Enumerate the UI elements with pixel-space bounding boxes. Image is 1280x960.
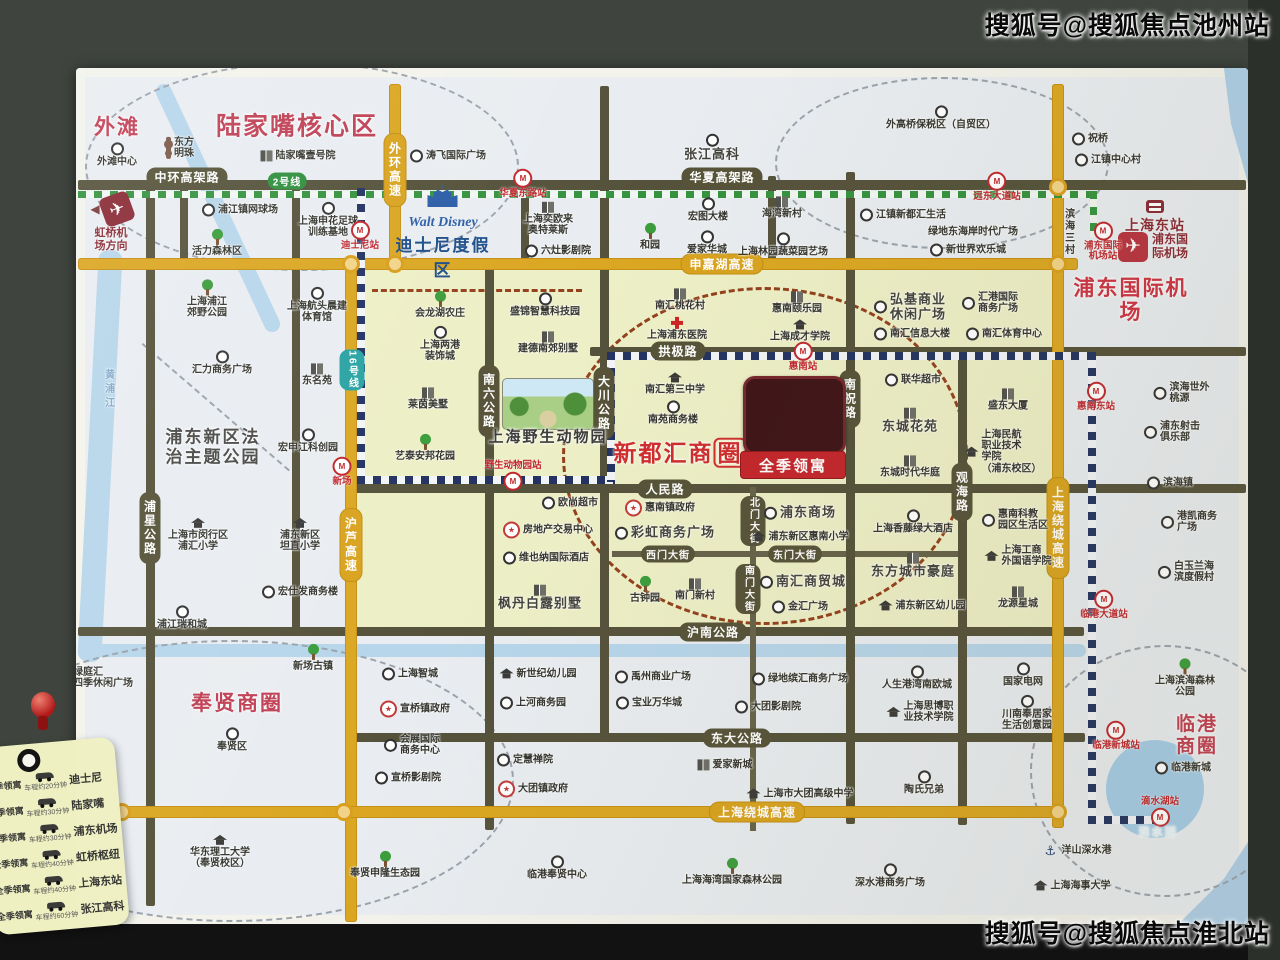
ring-icon: [525, 245, 538, 258]
metro-station-label: 远东大道站: [973, 192, 1021, 202]
poi-marker: 大团镇政府: [498, 781, 568, 798]
ring-icon: [1021, 695, 1034, 708]
ring-icon: [503, 552, 516, 565]
bldg-icon: [791, 291, 803, 302]
highway-junction-node: [1049, 255, 1067, 273]
poi-marker: 建德南郊别墅: [518, 331, 578, 354]
school-icon: [500, 669, 514, 680]
ring-icon: [551, 855, 564, 868]
bldg-icon: [674, 288, 686, 299]
poi-marker: 浦江瑞和城: [157, 605, 207, 630]
poi-label: 华东理工大学 （奉贤校区）: [190, 847, 250, 869]
district-label: 新都汇商圈: [614, 440, 747, 466]
poi-label: 浦东新区惠南小学: [769, 531, 849, 542]
metro-station: 迪士尼站: [341, 221, 379, 251]
ring-icon: [1017, 662, 1030, 675]
poi-marker: 宏图大楼: [688, 197, 728, 222]
poi-marker: 惠南颐乐园: [772, 291, 822, 314]
poi-label: 海湾新村: [762, 208, 802, 219]
road: [78, 180, 1246, 190]
poi-marker: 古钟园: [630, 576, 660, 604]
legend-destination-label: 陆家嘴: [71, 795, 105, 814]
project-marker-box: [743, 376, 846, 455]
metro-logo-icon: [793, 342, 812, 361]
airplane-icon: ✈: [97, 190, 135, 228]
poi-label: 深水港商务广场: [855, 877, 925, 888]
ring-icon: [885, 374, 898, 387]
poi-label: 上海智城: [398, 668, 438, 679]
poi-label: 爱家华城: [687, 244, 727, 255]
poi-marker: 宏申江科创园: [278, 428, 338, 453]
ring-icon: [375, 772, 388, 785]
ring-icon: [860, 209, 873, 222]
poi-label: 新场古镇: [293, 661, 333, 672]
poi-label: 上海海事大学: [1051, 880, 1111, 891]
poi-marker: 上河商务园: [500, 697, 566, 710]
poi-marker: 联华超市: [885, 374, 941, 387]
poi-marker: 东名苑: [302, 363, 332, 386]
sea-area-northeast: [1181, 68, 1248, 380]
school-icon: [293, 518, 307, 529]
car-icon: [38, 797, 57, 808]
disney-resort-label: 迪士尼度假区: [391, 231, 495, 281]
school-icon: [747, 789, 761, 800]
poi-marker: 彩虹商务广场: [615, 526, 715, 541]
legend-drive-time: 车程约60分钟: [35, 900, 78, 923]
metro-station-label: 惠南站: [789, 362, 818, 372]
poi-marker: 会龙湖农庄: [415, 291, 465, 319]
poi-label: 港凯商务广场: [1177, 511, 1219, 533]
poi-marker: 奉贤区: [217, 727, 247, 752]
legend-time-label: 车程约30分钟: [28, 831, 72, 845]
poi-label: 涛飞国际广场: [426, 150, 486, 161]
metro-line-2: [78, 191, 1094, 198]
bldg-icon: [542, 202, 554, 213]
poi-marker: 陆家嘴壹号院: [261, 150, 336, 161]
legend-origin-label: 全季领寓: [0, 907, 33, 923]
poi-marker: 港凯商务广场: [1161, 511, 1219, 533]
poi-marker: 新场古镇: [293, 644, 333, 672]
road: [78, 627, 1084, 636]
metro-station: 滴水湖站: [1141, 797, 1179, 827]
ring-icon: [918, 770, 931, 783]
poi-label: 宝业万华城: [632, 697, 682, 708]
ring-icon: [701, 230, 714, 243]
poi-marker: 东方 明珠: [166, 137, 194, 159]
highway-road: [78, 806, 1066, 818]
district-label: 陆家嘴核心区: [216, 113, 378, 142]
legend-origin-label: 全季领寓: [0, 829, 26, 845]
poi-marker: 浦东新区 坦直小学: [280, 518, 320, 552]
road: [292, 186, 300, 632]
district-dashed-ellipse: [76, 640, 514, 922]
ring-icon: [667, 400, 680, 413]
poi-label: 南苑商务楼: [648, 414, 698, 425]
poi-marker: 江镇中心村: [1075, 154, 1141, 167]
poi-marker: 黄浦江: [102, 369, 113, 411]
poi-label: 建德南郊别墅: [518, 343, 578, 354]
metro-station-label: 滴水湖站: [1141, 797, 1179, 807]
tree-icon: [307, 644, 320, 660]
poi-marker: 海湾新村: [762, 196, 802, 219]
ring-icon: [874, 301, 887, 314]
car-icon: [42, 849, 61, 860]
ring-icon: [615, 526, 628, 539]
poi-label: 维也纳国际酒店: [519, 552, 589, 563]
poi-label: 陶氏兄弟: [904, 784, 944, 795]
poi-marker: 东城时代华庭: [880, 455, 940, 478]
legend-time-label: 车程约40分钟: [31, 857, 75, 871]
poi-marker: 莱茵美墅: [408, 387, 448, 410]
poi-marker: 外滩中心: [97, 142, 137, 167]
poi-marker: 弘基商业 休闲广场: [874, 292, 946, 321]
poi-label: 东方城市豪庭: [871, 565, 955, 580]
metro-line-16: [1088, 352, 1096, 822]
poi-marker: 绿地东海岸时代广场: [928, 226, 1018, 237]
poi-label: 浦东新区 坦直小学: [280, 530, 320, 552]
poi-label: 外高桥保税区（自贸区）: [886, 119, 996, 130]
poi-label: 欧尚超市: [558, 497, 598, 508]
legend-drive-time: 车程约30分钟: [26, 796, 69, 819]
metro-station: 浦东国际 机场站: [1084, 222, 1122, 263]
poi-label: 上海滨海森林公园: [1154, 675, 1217, 697]
ring-icon: [539, 292, 552, 305]
poi-label: 大团镇政府: [518, 783, 568, 794]
poi-marker: 滨海三村: [1062, 208, 1073, 256]
ring-icon: [735, 701, 748, 714]
poi-label: 枫丹白露别墅: [498, 597, 582, 612]
poi-marker: 华东理工大学 （奉贤校区）: [190, 835, 250, 869]
poi-label: 洋山深水港: [1062, 845, 1112, 856]
poi-marker: 南汇商贸城: [760, 575, 846, 590]
star-icon: [380, 701, 397, 718]
poi-marker: 宏仕发商务楼: [262, 586, 338, 599]
poi-label: 滨海镇: [1163, 477, 1193, 488]
poi-marker: 浦东商场: [764, 506, 836, 521]
poi-marker: 上海滨海森林公园: [1154, 658, 1217, 697]
school-icon: [887, 707, 901, 718]
poi-marker: 汇港国际 商务广场: [962, 292, 1018, 314]
poi-marker: 奉贤申隆生态园: [350, 851, 420, 879]
poi-label: 盛锦智慧科技园: [510, 306, 580, 317]
poi-label: 滨海三村: [1062, 208, 1073, 256]
ring-icon: [226, 727, 239, 740]
legend-destination-label: 上海东站: [78, 871, 123, 891]
poi-marker: 上海两港 装饰城: [420, 326, 460, 362]
ring-icon: [616, 697, 629, 710]
tree-icon: [639, 576, 652, 592]
poi-marker: 爱家新城: [698, 759, 753, 770]
poi-label: 宣桥影剧院: [391, 772, 441, 783]
metro-logo-icon: [513, 169, 532, 188]
poi-label: 宏仕发商务楼: [278, 586, 338, 597]
poi-label: 会展国际 商务中心: [400, 734, 440, 756]
poi-label: 盛东大厦: [988, 400, 1028, 411]
ring-icon: [410, 150, 423, 163]
poi-marker: 人生港湾南欧城: [882, 665, 952, 690]
ring-icon: [907, 509, 920, 522]
bldg-icon: [422, 387, 434, 398]
poi-label: 南汇商贸城: [776, 575, 846, 590]
poi-marker: 上海林园蔬菜园艺场: [738, 232, 828, 257]
poi-marker: 六灶影剧院: [525, 245, 591, 258]
metro-station: 远东大道站: [973, 172, 1021, 202]
poi-marker: 浦东射击 俱乐部: [1144, 421, 1200, 443]
poi-label: 人生港湾南欧城: [882, 679, 952, 690]
district-label: 浦东新区法 治主题公园: [166, 427, 261, 466]
poi-label: 上海海湾国家森林公园: [682, 875, 782, 886]
poi-label: 爱家新城: [713, 759, 753, 770]
bldg-icon: [904, 455, 916, 466]
ring-icon: [1147, 477, 1160, 490]
highway-junction-node: [335, 803, 353, 821]
road-label: 沪芦高速: [341, 509, 362, 581]
poi-marker: 龙源星城: [998, 586, 1038, 609]
disney-logo-text: Walt Disney: [391, 215, 495, 231]
shanghai-east-station-block: 上海东站: [1124, 200, 1186, 235]
poi-label: 临港新城: [1171, 762, 1211, 773]
poi-label: 会龙湖农庄: [415, 308, 465, 319]
project-name-banner: 全季领寓: [740, 451, 846, 479]
poi-marker: 上海航头晨建 体育馆: [287, 287, 347, 323]
poi-marker: 枫丹白露别墅: [498, 585, 582, 612]
poi-label: 金汇广场: [788, 601, 828, 612]
poi-label: 上海林园蔬菜园艺场: [738, 246, 828, 257]
poi-label: 大团影剧院: [751, 701, 801, 712]
poi-marker: 上海市大团高级中学: [747, 788, 854, 799]
ring-icon: [1158, 566, 1171, 579]
road-label: 东大公路: [703, 729, 771, 748]
metro-station-label: 野生动物园站: [484, 461, 541, 471]
poi-marker: 上海思博职 业技术学院: [887, 701, 954, 723]
bldg-icon: [542, 331, 554, 342]
river-band: [77, 250, 123, 663]
legend-destination-label: 迪士尼: [68, 769, 102, 788]
wildlife-park-image: [502, 378, 594, 430]
bldg-icon: [1002, 388, 1014, 399]
poi-label: 活力森林区: [192, 246, 242, 257]
ring-icon: [874, 328, 887, 341]
poi-marker: 上海奕欧来 奥特莱斯: [523, 202, 573, 236]
road-label: 人民路: [637, 480, 692, 499]
ring-icon: [202, 204, 215, 217]
bldg-icon: [311, 363, 323, 374]
poi-marker: 外高桥保税区（自贸区）: [886, 105, 996, 130]
school-icon: [191, 518, 205, 529]
poi-label: 定慧禅院: [513, 754, 553, 765]
poi-label: 上海香藤绿大酒店: [873, 523, 953, 534]
poi-marker: 南苑商务楼: [648, 400, 698, 425]
metro-station: 临港新城站: [1092, 721, 1140, 751]
ring-icon: [760, 575, 773, 588]
ring-icon: [111, 142, 124, 155]
ring-icon: [311, 287, 324, 300]
school-icon: [1034, 881, 1048, 892]
star-icon: [625, 500, 642, 517]
poi-marker: 涛飞国际广场: [410, 150, 486, 163]
metro-logo-icon: [503, 472, 522, 491]
poi-marker: 陶氏兄弟: [904, 770, 944, 795]
legend-time-label: 车程约60分钟: [35, 909, 79, 923]
ring-icon: [982, 514, 995, 527]
poi-marker: 浦东新区惠南小学: [752, 531, 849, 542]
poi-label: 南汇信息大楼: [890, 328, 950, 339]
poi-marker: 江镇新都汇生活: [860, 209, 946, 222]
ring-icon: [302, 428, 315, 441]
road: [485, 262, 494, 830]
poi-label: 南门新村: [675, 590, 715, 601]
legend-origin-label: 全季领寓: [0, 881, 31, 897]
car-icon: [35, 771, 54, 782]
cross-icon: [671, 317, 683, 329]
road-label: 2号线: [268, 173, 307, 190]
poi-marker: 盛东大厦: [988, 388, 1028, 411]
disney-castle-icon: [422, 184, 464, 210]
poi-marker: 南汇第三中学: [645, 372, 705, 395]
road-label: 浦星公路: [140, 492, 161, 564]
disney-resort-block: Walt Disney 迪士尼度假区: [391, 184, 495, 281]
tree-icon: [211, 229, 224, 245]
legend-origin-label: 全季领寓: [0, 803, 24, 819]
poi-marker: 白玉兰海滨度假村: [1158, 561, 1218, 583]
poi-label: 南汇第三中学: [645, 384, 705, 395]
poi-label: 上海市闵行区 浦汇小学: [168, 530, 228, 552]
poi-label: 张江高科: [684, 148, 740, 163]
school-icon: [793, 319, 807, 330]
road-label: 沪南公路: [679, 623, 747, 642]
metro-station-label: 华夏东路站: [499, 189, 547, 199]
poi-marker: 上海工商 外国语学院: [985, 545, 1052, 567]
ring-icon: [966, 328, 979, 341]
poi-marker: 国家电网: [1003, 662, 1043, 687]
metro-station-label: 惠南东站: [1077, 402, 1115, 412]
poi-marker: 东方城市豪庭: [871, 553, 955, 580]
poi-label: 上海浦江 郊野公园: [187, 296, 227, 318]
metro-station-label: 迪士尼站: [341, 241, 379, 251]
poi-label: 六灶影剧院: [541, 245, 591, 256]
poi-marker: ⚓洋山深水港: [1045, 844, 1112, 858]
ring-icon: [1161, 516, 1174, 529]
poi-label: 南汇桃花村: [655, 300, 705, 311]
legend-time-label: 车程约40分钟: [33, 883, 77, 897]
poi-label: 艺泰安邦花园: [395, 451, 455, 462]
poi-label: 宣桥镇政府: [400, 703, 450, 714]
poi-label: 禹州商业广场: [631, 671, 691, 682]
car-icon: [45, 875, 64, 886]
poi-marker: 临港奉贤中心: [527, 855, 587, 880]
district-label: 上海野生动物园: [488, 428, 607, 445]
poi-marker: 上海海事大学: [1034, 880, 1111, 891]
bldg-icon: [907, 553, 919, 564]
poi-marker: 汇力商务广场: [192, 350, 252, 375]
road: [958, 347, 967, 825]
poi-label: 滨海世外桃源: [1170, 382, 1217, 404]
poi-marker: 上海市闵行区 浦汇小学: [168, 518, 228, 552]
poi-marker: 南汇桃花村: [655, 288, 705, 311]
highway-road: [78, 258, 1078, 270]
metro-logo-icon: [1106, 721, 1125, 740]
poi-label: 绿庭汇 四季休闲广场: [76, 667, 133, 689]
ring-icon: [1155, 762, 1168, 775]
road-label: 南门大街: [736, 564, 761, 614]
poi-label: 川南奉居家 生活创意园: [1002, 709, 1052, 731]
poi-marker: 惠南镇政府: [625, 500, 695, 517]
poi-label: 联华超市: [901, 374, 941, 385]
poi-label: 上海浦东医院: [647, 330, 707, 341]
poi-label: 国家电网: [1003, 676, 1043, 687]
arrow-left-icon: ◀: [90, 202, 99, 216]
ring-icon: [615, 671, 628, 684]
tree-icon: [201, 279, 214, 295]
poi-label: 奉贤区: [217, 741, 247, 752]
bldg-icon: [1012, 586, 1024, 597]
hongqiao-direction-label: 虹桥机 场方向: [78, 227, 144, 252]
poi-marker: 上海香藤绿大酒店: [873, 509, 953, 534]
school-icon: [965, 447, 979, 458]
star-icon: [498, 781, 515, 798]
star-icon: [503, 522, 520, 539]
school-icon: [668, 372, 682, 383]
district-label: 奉贤商圈: [191, 692, 283, 716]
poi-label: 弘基商业 休闲广场: [890, 292, 946, 321]
poi-label: 上海工商 外国语学院: [1002, 545, 1052, 567]
poi-label: 浦东射击 俱乐部: [1160, 421, 1200, 443]
poi-label: 宏图大楼: [688, 211, 728, 222]
airplane-icon: ✈: [1118, 232, 1148, 262]
district-label: 滴水湖: [1139, 827, 1178, 840]
poi-label: 外滩中心: [97, 156, 137, 167]
poi-marker: 大团影剧院: [735, 701, 801, 714]
poi-label: 祝桥: [1088, 133, 1108, 144]
legend-time-label: 车程约20分钟: [24, 779, 68, 793]
watermark-top: 搜狐号@搜狐焦点池州站: [985, 6, 1270, 42]
poi-label: 惠南镇政府: [645, 502, 695, 513]
poi-label: 上海民航 职业技术 学院 （浦东校区）: [982, 430, 1042, 475]
poi-marker: 新世界欢乐城: [930, 244, 1006, 257]
ring-icon: [764, 506, 777, 519]
poi-marker: 艺泰安邦花园: [395, 434, 455, 462]
poi-marker: 临港新城: [1155, 762, 1211, 775]
ring-icon: [1075, 154, 1088, 167]
poi-label: 上海航头晨建 体育馆: [287, 301, 347, 323]
poi-label: 上河商务园: [516, 697, 566, 708]
poi-label: 东名苑: [302, 375, 332, 386]
road-label: 上海绕城高速: [710, 803, 804, 822]
hongqiao-direction-block: ◀ ✈ 虹桥机 场方向: [78, 194, 144, 252]
metro-station-label: 临港大道站: [1080, 610, 1128, 620]
poi-marker: 上海智城: [382, 668, 438, 681]
poi-label: 临港奉贤中心: [527, 869, 587, 880]
ring-icon: [772, 601, 785, 614]
metro-station: 惠南东站: [1077, 382, 1115, 412]
poi-label: 汇力商务广场: [192, 364, 252, 375]
railway-station-icon: [1146, 200, 1164, 213]
ring-icon: [500, 697, 513, 710]
ring-icon: [542, 497, 555, 510]
poi-label: 黄浦江: [102, 369, 113, 411]
poi-marker: 盛锦智慧科技园: [510, 292, 580, 317]
poi-label: 白玉兰海滨度假村: [1174, 561, 1218, 583]
legend-destination-label: 浦东机场: [73, 820, 118, 840]
poi-label: 新世纪幼儿园: [517, 668, 577, 679]
road-label: 西门大街: [641, 546, 695, 563]
ring-icon: [262, 586, 275, 599]
legend-origin-label: 全季领寓: [0, 855, 29, 871]
poi-marker: 绿庭汇 四季休闲广场: [76, 667, 133, 689]
poi-marker: 深水港商务广场: [855, 863, 925, 888]
ring-icon: [752, 673, 765, 686]
district-label: 浦东国际机场: [1073, 277, 1190, 325]
